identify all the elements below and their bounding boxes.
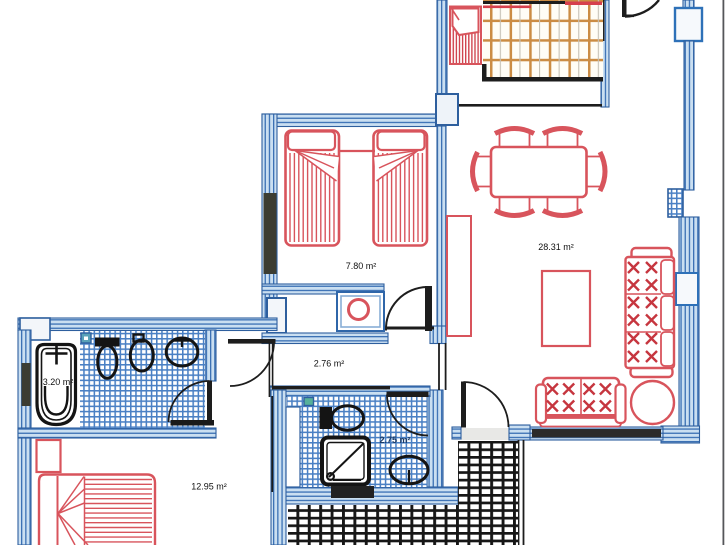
svg-text:3.20 m²: 3.20 m² <box>43 377 74 387</box>
svg-text:2.75 m²: 2.75 m² <box>379 435 410 445</box>
svg-text:28.31 m²: 28.31 m² <box>538 242 574 252</box>
svg-text:2.76 m²: 2.76 m² <box>314 359 345 369</box>
svg-text:12.95 m²: 12.95 m² <box>191 482 227 492</box>
svg-text:7.80 m²: 7.80 m² <box>346 261 377 271</box>
